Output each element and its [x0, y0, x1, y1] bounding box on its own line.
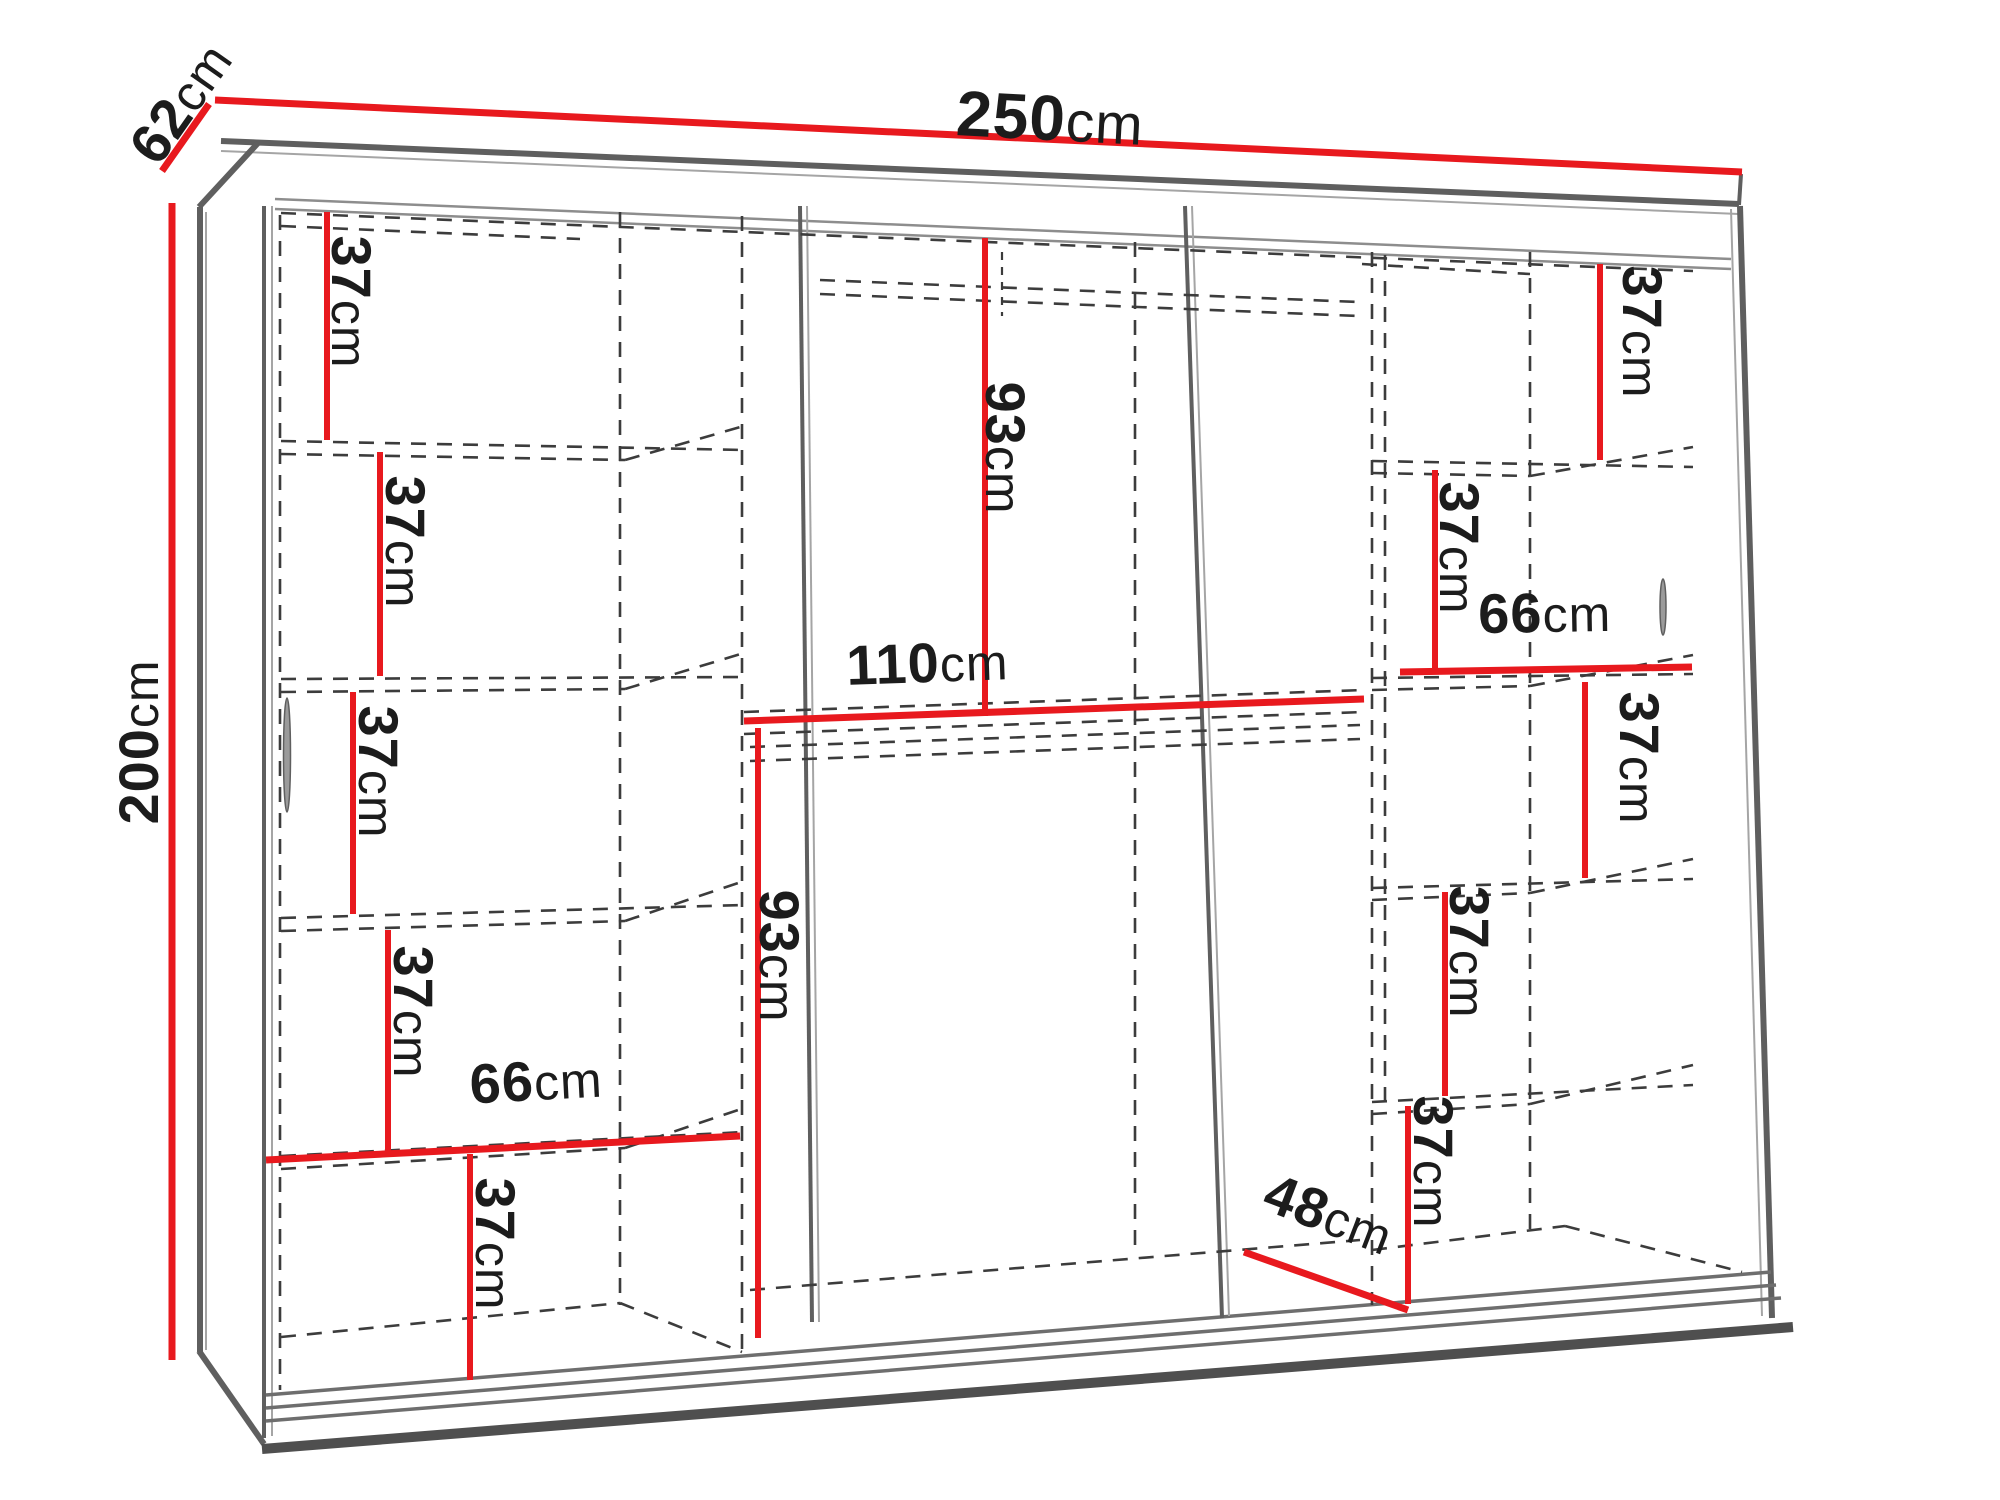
- label-left-width-66: 66cm: [468, 1046, 604, 1116]
- sliding-door-edge-left: [800, 206, 812, 1322]
- label-right-gap-3: 37cm: [1608, 692, 1671, 825]
- shelf-depth-edge: [1530, 1065, 1693, 1104]
- shelf-depth-edge: [1530, 447, 1693, 476]
- label-right-gap-5: 37cm: [1402, 1096, 1465, 1229]
- label-right-gap-4: 37cm: [1438, 886, 1501, 1019]
- floor-corner-edge: [620, 1303, 742, 1352]
- top-left-corner-edge: [199, 143, 258, 207]
- label-left-gap-2: 37cm: [374, 476, 437, 609]
- hanging-rail-lower-2: [750, 739, 1360, 761]
- shelf-edge: [281, 454, 625, 460]
- shelf-depth-edge: [625, 426, 744, 460]
- sliding-door-edge-right: [1185, 206, 1222, 1318]
- label-floor-depth-48: 48cm: [1256, 1161, 1403, 1267]
- label-left-gap-1: 37cm: [320, 236, 383, 369]
- shelf-edge: [281, 921, 625, 931]
- shelf-edge: [281, 677, 744, 679]
- middle-floor-back-dashed: [750, 1240, 1360, 1290]
- right-side-panel-edge: [1740, 206, 1772, 1318]
- floor-back-edge: [1372, 1226, 1565, 1250]
- wardrobe-dimension-diagram: 250cm 62cm 200cm 37cm 37cm 37cm 37cm 66c…: [0, 0, 2000, 1500]
- label-lower-hanging-93: 93cm: [748, 890, 811, 1023]
- dim-line-middle-width-110: [744, 699, 1364, 721]
- dim-line-floor-depth-48: [1244, 1252, 1408, 1310]
- label-upper-hanging-93: 93cm: [974, 382, 1037, 515]
- hanging-rail-upper-2: [820, 294, 1358, 316]
- label-right-gap-1: 37cm: [1611, 266, 1674, 399]
- floor-back-edge: [281, 1303, 620, 1337]
- shelf-depth-edge: [1530, 859, 1693, 893]
- hanging-rail-lower-1: [750, 725, 1360, 747]
- label-left-gap-4: 37cm: [382, 946, 445, 1079]
- shelf-edge: [1372, 473, 1530, 476]
- shelf-depth-edge: [625, 881, 744, 921]
- bottom-left-corner-edge: [199, 1351, 264, 1444]
- hanging-rail-upper-1: [820, 280, 1358, 302]
- cabinet-outline: [199, 141, 1793, 1449]
- ceiling-dashed-right: [1362, 264, 1530, 274]
- shelf-edge: [281, 441, 744, 450]
- diagram-canvas: 250cm 62cm 200cm 37cm 37cm 37cm 37cm 66c…: [0, 0, 2000, 1500]
- top-right-corner-edge: [1739, 174, 1741, 205]
- top-front-edge: [221, 141, 1739, 204]
- top-sliding-rail-1: [275, 199, 1731, 259]
- floor-corner-edge: [1565, 1226, 1742, 1272]
- sliding-door-edge-right-highlight: [1192, 206, 1229, 1316]
- shelf-edge: [281, 689, 625, 692]
- shelf-edge: [1372, 686, 1530, 690]
- shelf-edge: [1372, 461, 1693, 467]
- door-handle-left: [284, 698, 291, 812]
- door-handle-right: [1660, 579, 1666, 635]
- label-right-width-66: 66cm: [1478, 580, 1612, 645]
- shelf-depth-edge: [625, 653, 744, 689]
- label-width-250: 250cm: [954, 77, 1145, 159]
- label-left-gap-5: 37cm: [464, 1178, 527, 1311]
- dim-line-right-width-66: [1400, 667, 1692, 672]
- label-left-gap-3: 37cm: [347, 706, 410, 839]
- label-height-200: 200cm: [107, 659, 170, 824]
- shelf-edge: [1372, 879, 1693, 888]
- label-middle-width-110: 110cm: [845, 628, 1009, 697]
